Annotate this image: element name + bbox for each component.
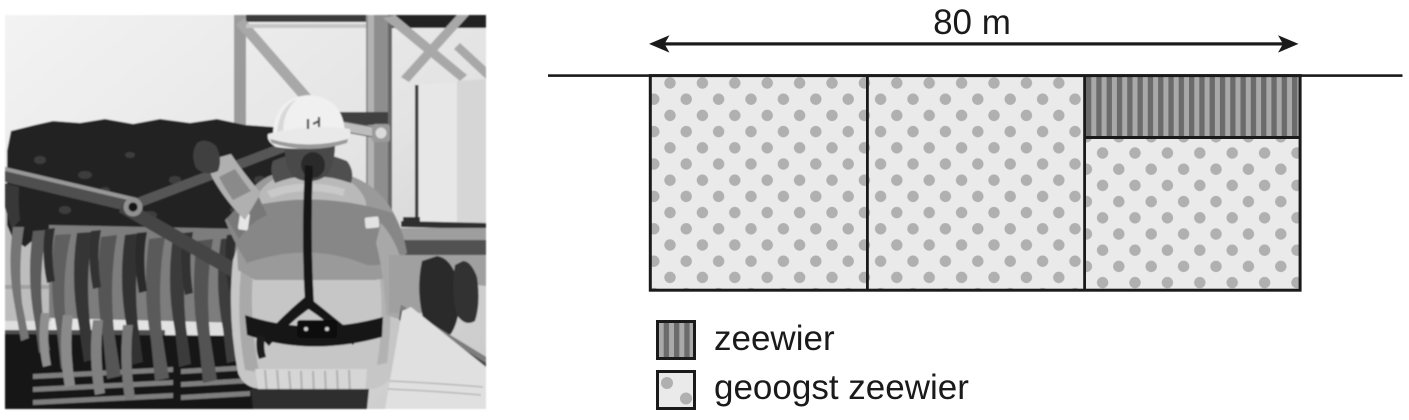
svg-text:geoogst zeewier: geoogst zeewier (714, 368, 969, 407)
svg-text:80 m: 80 m (933, 3, 1011, 42)
svg-text:zeewier: zeewier (714, 319, 835, 358)
